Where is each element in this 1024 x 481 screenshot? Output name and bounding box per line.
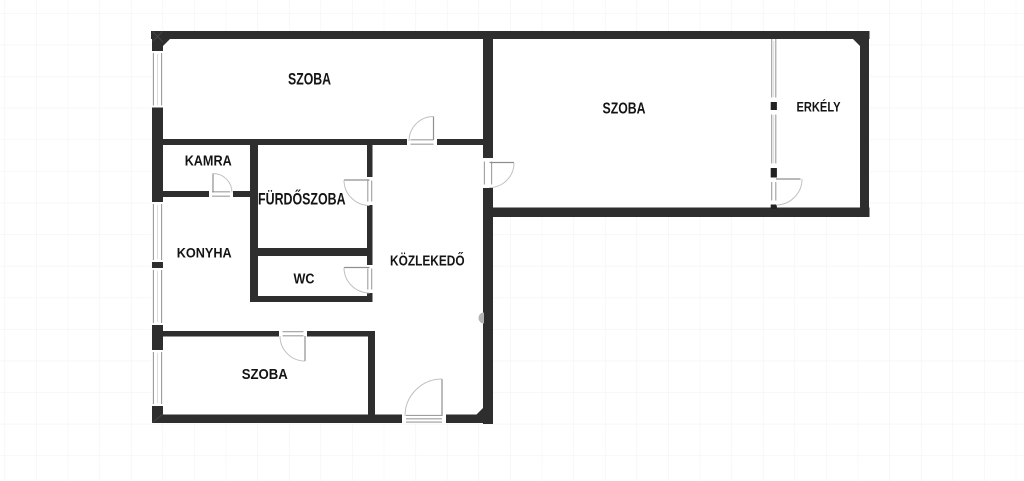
svg-text:KONYHA: KONYHA (177, 245, 232, 261)
svg-text:WC: WC (294, 272, 315, 288)
svg-text:FÜRDŐSZOBA: FÜRDŐSZOBA (258, 190, 346, 209)
svg-text:SZOBA: SZOBA (288, 71, 331, 89)
svg-text:KAMRA: KAMRA (185, 154, 232, 170)
svg-text:KÖZLEKEDŐ: KÖZLEKEDŐ (390, 252, 465, 270)
svg-text:SZOBA: SZOBA (242, 366, 288, 383)
svg-text:SZOBA: SZOBA (603, 101, 646, 118)
svg-text:ERKÉLY: ERKÉLY (797, 99, 841, 114)
